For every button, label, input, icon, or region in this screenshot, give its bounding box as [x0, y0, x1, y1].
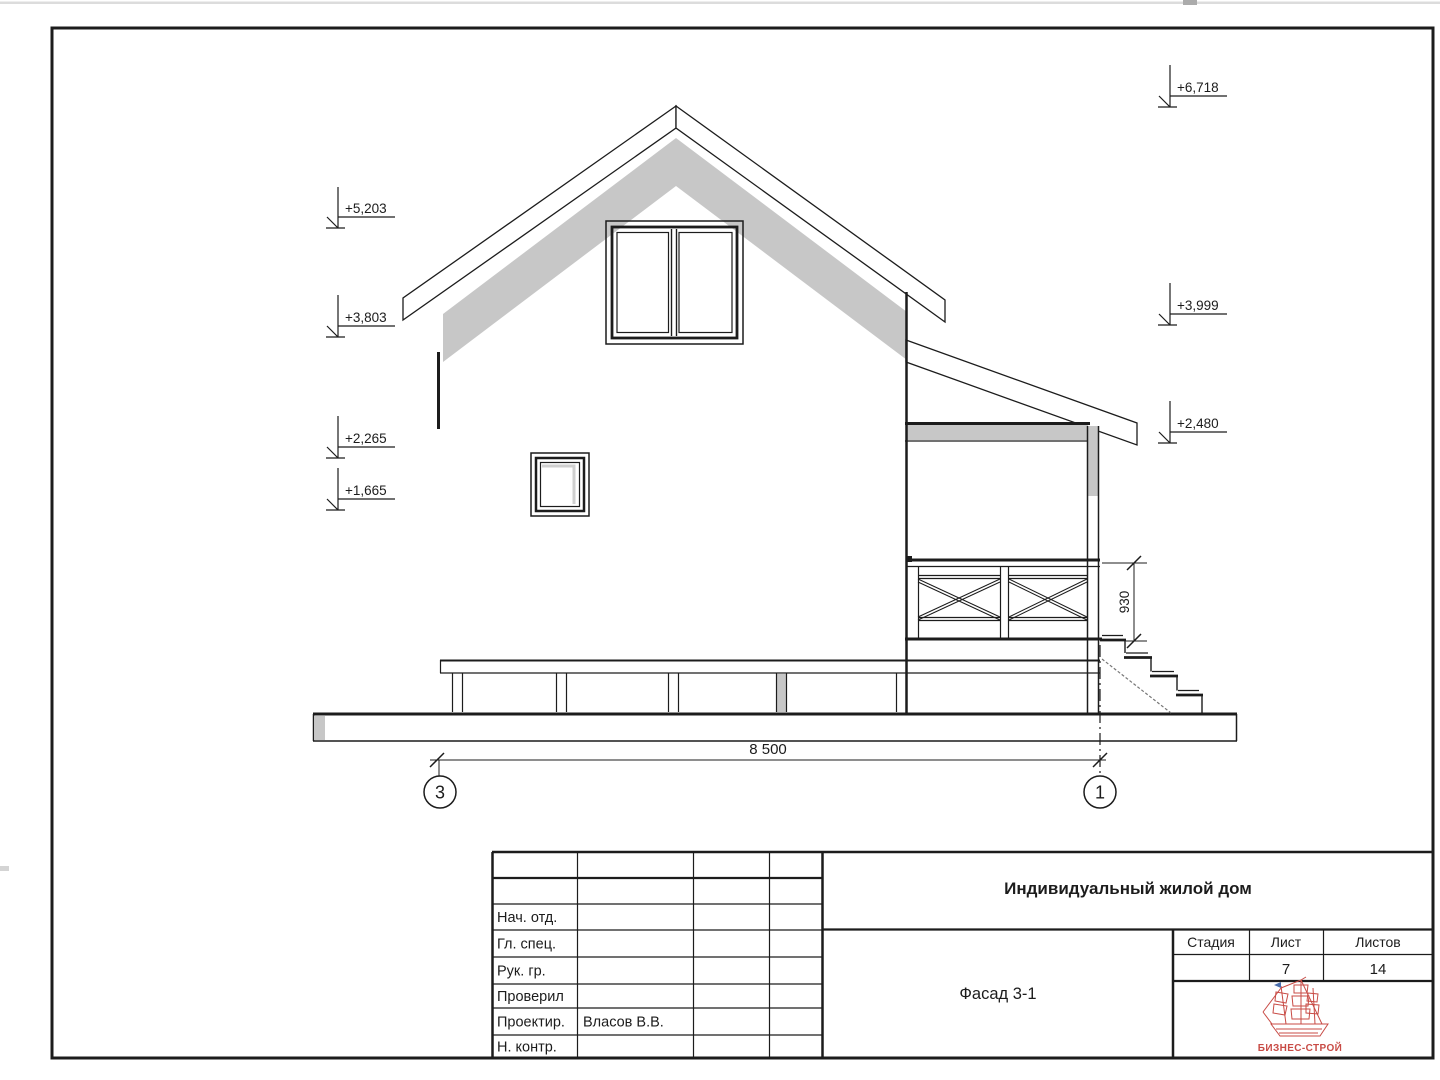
foundation — [313, 714, 1237, 741]
elevation-marker: +2,265 — [326, 416, 395, 458]
elevation-marker: +1,665 — [326, 468, 395, 510]
gable-window — [606, 221, 743, 344]
title-block: Нач. отд. Гл. спец. Рук. гр. Проверил Пр… — [492, 852, 1433, 1058]
elevation-label: +2,480 — [1177, 416, 1219, 431]
sheet-number: 7 — [1282, 961, 1290, 978]
roof-shadow — [443, 138, 907, 362]
railing-panel — [1009, 576, 1087, 621]
porch-beam — [905, 424, 1099, 497]
railing-panel — [918, 576, 1000, 621]
elevation-marker: +3,999 — [1158, 283, 1227, 325]
role-label: Проверил — [497, 989, 564, 1005]
sheets-total: 14 — [1370, 961, 1387, 978]
wall-window — [531, 453, 589, 516]
porch-railing — [905, 426, 1102, 713]
elevation-label: +2,265 — [345, 431, 387, 446]
title-block-roles: Нач. отд. Гл. спец. Рук. гр. Проверил Пр… — [497, 910, 664, 1056]
elevation-label: +3,999 — [1177, 298, 1219, 313]
designer-name: Власов В.В. — [583, 1015, 664, 1031]
elevation-label: +3,803 — [345, 310, 387, 325]
dimension-overall-width: 8 500 — [430, 741, 1107, 776]
stairs — [1100, 636, 1203, 714]
elevation-marker: +3,803 — [326, 295, 395, 337]
walls — [439, 292, 907, 713]
role-label: Проектир. — [497, 1015, 565, 1031]
role-label: Гл. спец. — [497, 937, 556, 953]
dimension-railing-height: 930 — [1102, 556, 1147, 648]
elevation-label: +5,203 — [345, 201, 387, 216]
elevation-label: +1,665 — [345, 483, 387, 498]
company-logo: БИЗНЕС-СТРОЙ — [1258, 977, 1342, 1054]
axis-label: 3 — [435, 783, 445, 803]
elevation-marker: +6,718 — [1158, 65, 1227, 107]
role-label: Рук. гр. — [497, 964, 546, 980]
ship-flag-icon — [1274, 982, 1281, 988]
axis-label: 1 — [1095, 783, 1105, 803]
dimension-label: 8 500 — [749, 741, 787, 758]
role-label: Нач. отд. — [497, 910, 557, 926]
drawing-sheet: +5,203 +3,803 +2,265 +1,665 +6,718 +3,99… — [0, 0, 1440, 1080]
logo-text: БИЗНЕС-СТРОЙ — [1258, 1041, 1342, 1054]
dimension-label: 930 — [1117, 591, 1132, 614]
facade-drawing-canvas: +5,203 +3,803 +2,265 +1,665 +6,718 +3,99… — [0, 0, 1440, 1080]
role-label: Н. контр. — [497, 1040, 557, 1056]
elevation-marker: +2,480 — [1158, 401, 1227, 443]
elevation-label: +6,718 — [1177, 80, 1219, 95]
sheet-info: Стадия Лист Листов 7 14 — [1187, 934, 1401, 978]
ship-icon — [1263, 977, 1328, 1036]
project-title: Индивидуальный жилой дом — [1004, 879, 1252, 898]
deck-structure — [440, 660, 1100, 712]
sheet-label: Лист — [1271, 934, 1302, 950]
axis-markers: 3 1 — [424, 645, 1116, 808]
elevation-marker: +5,203 — [326, 187, 395, 228]
stage-label: Стадия — [1187, 934, 1235, 950]
drawing-title: Фасад 3-1 — [959, 985, 1036, 1003]
sheets-label: Листов — [1355, 934, 1401, 950]
